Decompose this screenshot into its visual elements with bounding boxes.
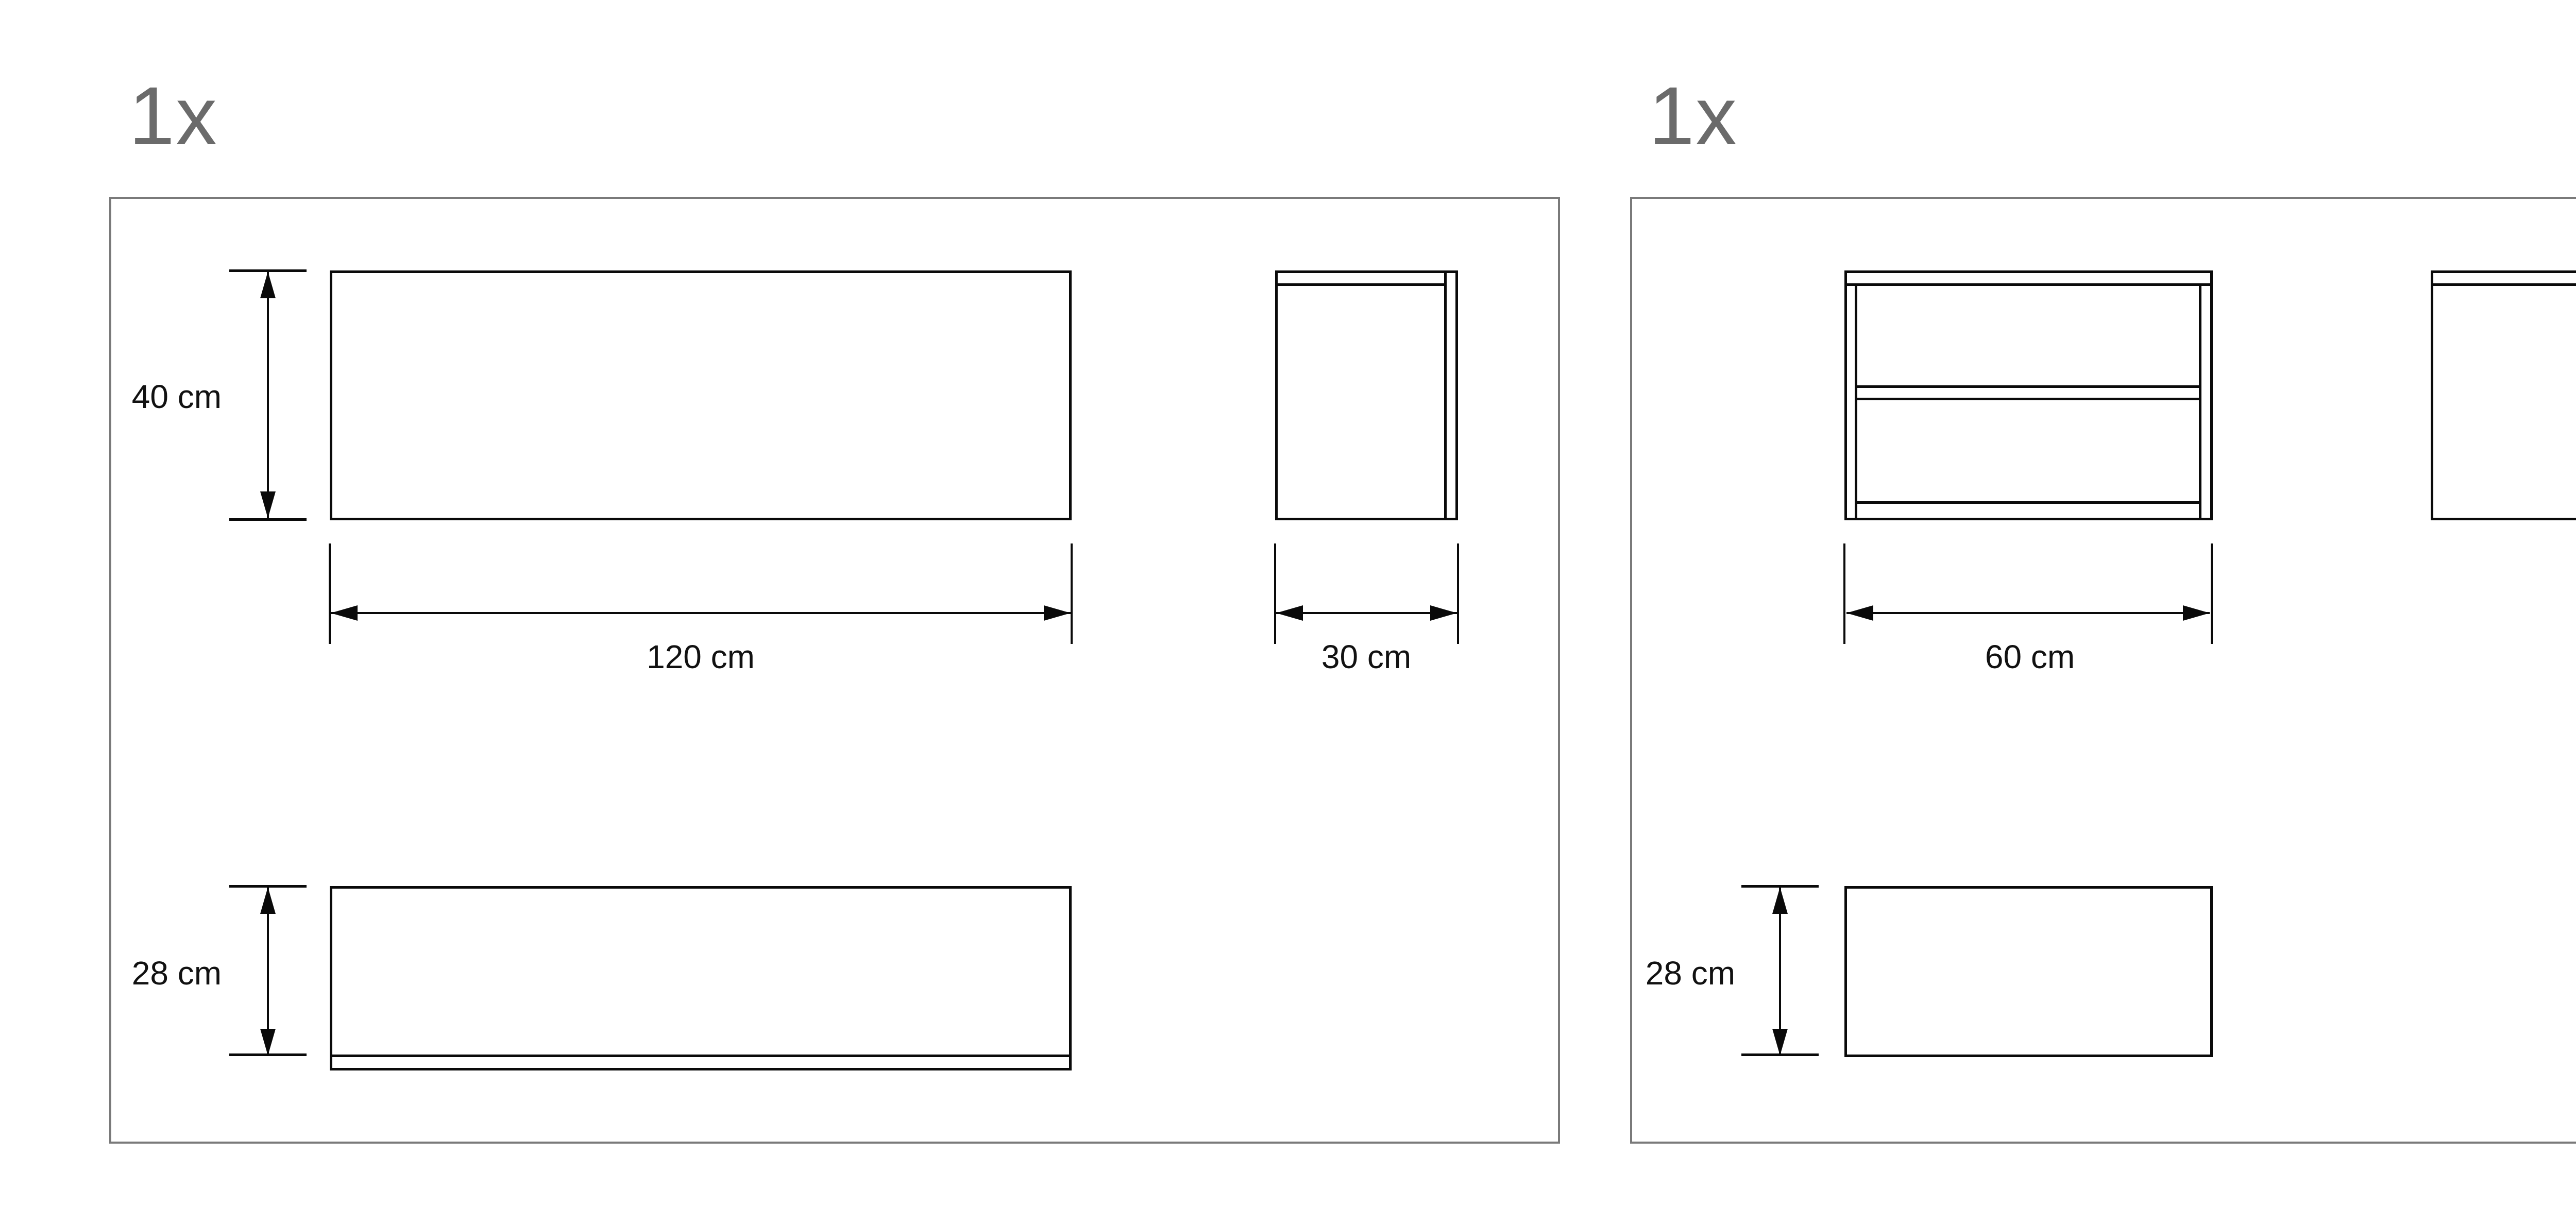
panel2-front-view xyxy=(1844,270,2213,520)
panel1-width-dim-arrow xyxy=(331,605,1071,621)
panel1-side-dim-arrow xyxy=(1276,605,1457,621)
panel1-side-dim-left-ext xyxy=(1274,543,1276,644)
panel1-height-dim-bottom-tick xyxy=(229,518,307,521)
panel2-shelf-bottom-line xyxy=(1857,398,2199,400)
panel1-side-width-label: 30 cm xyxy=(1263,639,1469,675)
panel1-side-top-panel-line xyxy=(1278,283,1444,286)
panel2-shelf-top-line xyxy=(1857,385,2199,388)
panel2-left-side-panel-line xyxy=(1855,286,1857,518)
panel2-front-width-label: 60 cm xyxy=(1927,639,2133,675)
panel1-width-dim-right-ext xyxy=(1071,543,1073,644)
panel1-front-width-label: 120 cm xyxy=(598,639,804,675)
panel2-quantity-label: 1x xyxy=(1649,75,1738,157)
panel1-front-view xyxy=(330,270,1072,520)
panel1-base-bottom-line xyxy=(332,1055,1069,1057)
panel2-side-top-panel-line xyxy=(2433,283,2576,286)
dimension-diagram: 1x 40 cm 120 cm 30 cm 28 cm 1x 60 cm xyxy=(0,0,2576,1224)
panel1-base-view xyxy=(330,886,1072,1070)
panel1-base-height-label: 28 cm xyxy=(15,955,222,991)
panel1-height-dim-arrow xyxy=(260,271,276,518)
panel2-bottom-panel-line xyxy=(1857,501,2199,504)
panel2-base-height-label: 28 cm xyxy=(1529,955,1735,991)
panel2-width-dim-right-ext xyxy=(2211,543,2213,644)
panel2-width-dim-left-ext xyxy=(1843,543,1845,644)
panel1-front-height-label: 40 cm xyxy=(15,379,222,415)
panel2-width-dim-arrow xyxy=(1846,605,2210,621)
panel1-side-back-panel-line xyxy=(1444,273,1447,518)
panel2-top-panel-line xyxy=(1847,283,2210,286)
panel1-base-dim-arrow xyxy=(260,887,276,1056)
panel2-base-dim-arrow xyxy=(1772,887,1788,1056)
panel1-side-view xyxy=(1275,270,1458,520)
panel1-quantity-label: 1x xyxy=(129,75,218,157)
panel2-base-view xyxy=(1844,886,2213,1057)
panel1-side-dim-right-ext xyxy=(1457,543,1459,644)
panel1-width-dim-left-ext xyxy=(329,543,331,644)
panel2-right-side-panel-line xyxy=(2199,286,2201,518)
panel2-side-view xyxy=(2431,270,2576,520)
